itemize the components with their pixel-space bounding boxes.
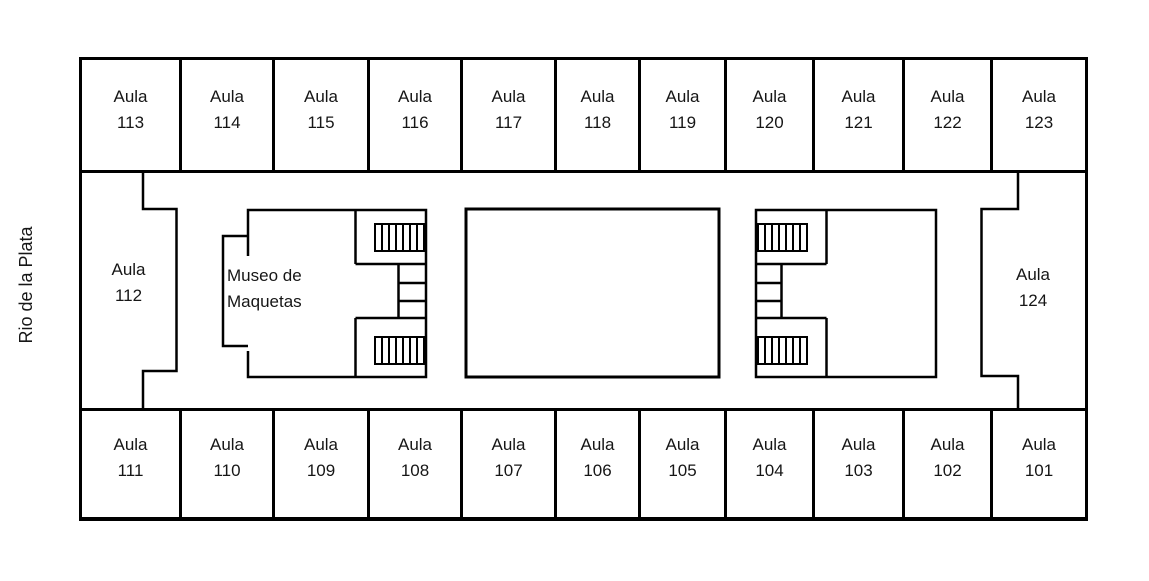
room-prefix: Aula [398,84,432,110]
room-prefix: Aula [113,84,147,110]
room-prefix: Aula [580,432,614,458]
room-aula-122: Aula 122 [902,57,993,173]
room-number: 122 [933,110,961,136]
room-aula-109: Aula 109 [272,408,370,521]
room-number: 121 [844,110,872,136]
room-aula-120: Aula 120 [724,57,815,173]
room-prefix: Aula [398,432,432,458]
room-number: 103 [844,458,872,484]
room-aula-124: Aula 124 [981,209,1085,376]
central-courtyard [466,209,719,377]
room-aula-102: Aula 102 [902,408,993,521]
room-number: 117 [495,110,522,136]
room-prefix: Aula [580,84,614,110]
museum-label-line2: Maquetas [227,289,347,315]
room-aula-105: Aula 105 [638,408,727,521]
room-aula-103: Aula 103 [812,408,905,521]
room-number: 104 [755,458,783,484]
room-aula-117: Aula 117 [460,57,557,173]
room-prefix: Aula [304,84,338,110]
room-number: 115 [307,110,334,136]
room-aula-110: Aula 110 [179,408,275,521]
room-aula-118: Aula 118 [554,57,641,173]
stair-hatch-lower-left-icon [375,337,424,364]
room-prefix: Aula [1022,84,1056,110]
room-aula-116: Aula 116 [367,57,463,173]
stair-hatch-upper-left-icon [375,224,424,251]
bottom-room-row: Aula 111 Aula 110 Aula 109 Aula 108 Aula… [79,408,1088,521]
room-aula-119: Aula 119 [638,57,727,173]
room-aula-112: Aula 112 [79,209,178,372]
room-prefix: Aula [930,432,964,458]
room-number: 116 [401,110,428,136]
museum-label-line1: Museo de [227,263,347,289]
stair-hatch-lower-right-icon [758,337,807,364]
room-prefix: Aula [111,257,145,283]
room-number: 120 [755,110,783,136]
room-number: 123 [1025,110,1053,136]
room-number: 114 [213,110,240,136]
stairwell-left [356,210,427,377]
room-prefix: Aula [841,432,875,458]
room-aula-123: Aula 123 [990,57,1088,173]
room-number: 106 [583,458,611,484]
room-prefix: Aula [210,432,244,458]
room-prefix: Aula [304,432,338,458]
stairwell-right [756,210,936,377]
room-aula-121: Aula 121 [812,57,905,173]
room-prefix: Aula [491,432,525,458]
room-number: 105 [668,458,696,484]
room-aula-111: Aula 111 [79,408,182,521]
room-prefix: Aula [930,84,964,110]
room-number: 111 [118,458,144,484]
room-aula-101: Aula 101 [990,408,1088,521]
room-prefix: Aula [210,84,244,110]
room-prefix: Aula [665,432,699,458]
top-room-row: Aula 113 Aula 114 Aula 115 Aula 116 Aula… [79,57,1088,173]
room-prefix: Aula [752,84,786,110]
room-number: 109 [307,458,335,484]
room-prefix: Aula [113,432,147,458]
room-prefix: Aula [1016,262,1050,288]
room-number: 119 [669,110,696,136]
room-prefix: Aula [752,432,786,458]
room-prefix: Aula [1022,432,1056,458]
room-aula-114: Aula 114 [179,57,275,173]
room-number: 112 [115,283,142,309]
room-prefix: Aula [665,84,699,110]
room-aula-107: Aula 107 [460,408,557,521]
room-number: 102 [933,458,961,484]
room-number: 110 [213,458,240,484]
stair-hatch-upper-right-icon [758,224,807,251]
room-number: 108 [401,458,429,484]
floor-plan: Rio de la Plata [0,0,1149,581]
room-aula-108: Aula 108 [367,408,463,521]
room-aula-104: Aula 104 [724,408,815,521]
room-aula-113: Aula 113 [79,57,182,173]
room-number: 107 [494,458,522,484]
room-aula-115: Aula 115 [272,57,370,173]
room-prefix: Aula [841,84,875,110]
room-number: 113 [117,110,144,136]
museum-label: Museo de Maquetas [227,263,347,315]
room-aula-106: Aula 106 [554,408,641,521]
room-prefix: Aula [491,84,525,110]
room-number: 101 [1025,458,1053,484]
room-number: 118 [584,110,611,136]
room-number: 124 [1019,288,1047,314]
